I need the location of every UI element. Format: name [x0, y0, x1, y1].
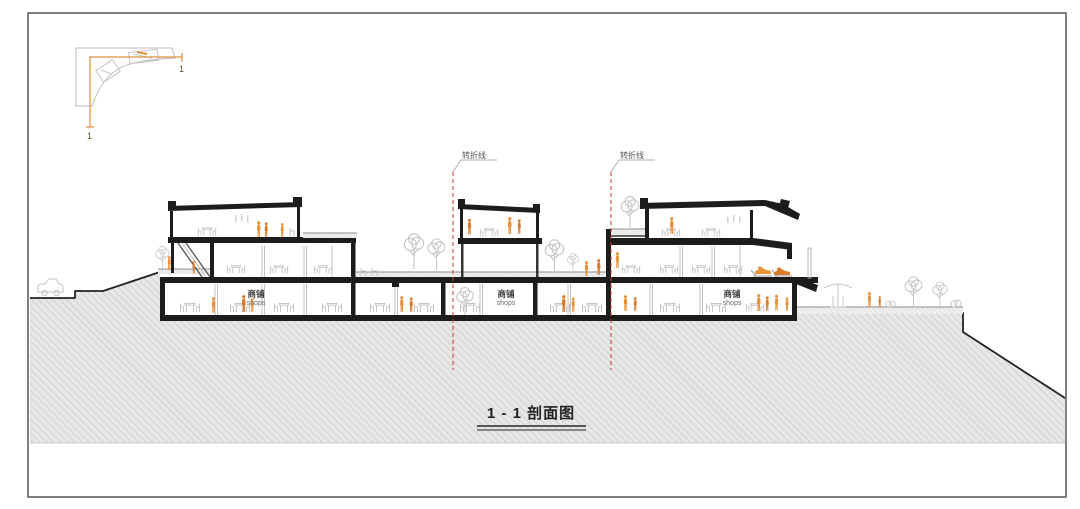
piloti-column-right — [536, 244, 539, 277]
piloti-column-left — [461, 244, 464, 277]
section-mark-1b: 1 — [87, 131, 92, 141]
section-title-text: 1 - 1 剖面图 — [487, 404, 575, 422]
bldg-mid-floor-slab — [458, 238, 542, 244]
podium-wall-right — [792, 283, 797, 315]
shop-label-left-cn: 商铺 — [247, 289, 265, 299]
podium-wall-4 — [533, 283, 538, 315]
turn-line-2-label: 转折线 — [620, 150, 644, 160]
shop-label-mid-cn: 商铺 — [497, 289, 515, 299]
podium-wall-2 — [351, 283, 356, 315]
door-head-nub — [392, 283, 399, 287]
podium-wall-left — [160, 277, 165, 321]
podium-floor-slab — [160, 315, 797, 321]
podium-roof-slab — [160, 277, 818, 283]
shop-label-mid-en: shops — [497, 300, 516, 307]
shop-label-right-cn: 商铺 — [723, 289, 741, 299]
turn-line-1-label: 转折线 — [462, 150, 486, 160]
section-title: 1 - 1 剖面图 — [477, 404, 586, 430]
shop-label-left-en: shops — [247, 300, 266, 307]
bldg-right-floor-slab — [608, 238, 753, 245]
shop-label-right-en: shops — [723, 300, 742, 307]
plaza-paving — [797, 307, 963, 314]
podium-wall-3 — [441, 283, 446, 315]
section-drawing-canvas: 1 1 — [0, 0, 1080, 509]
section-mark-1a: 1 — [179, 64, 184, 74]
shops-interior — [160, 283, 797, 315]
architectural-section-sheet: 1 1 — [0, 0, 1080, 509]
downstand — [787, 243, 792, 259]
